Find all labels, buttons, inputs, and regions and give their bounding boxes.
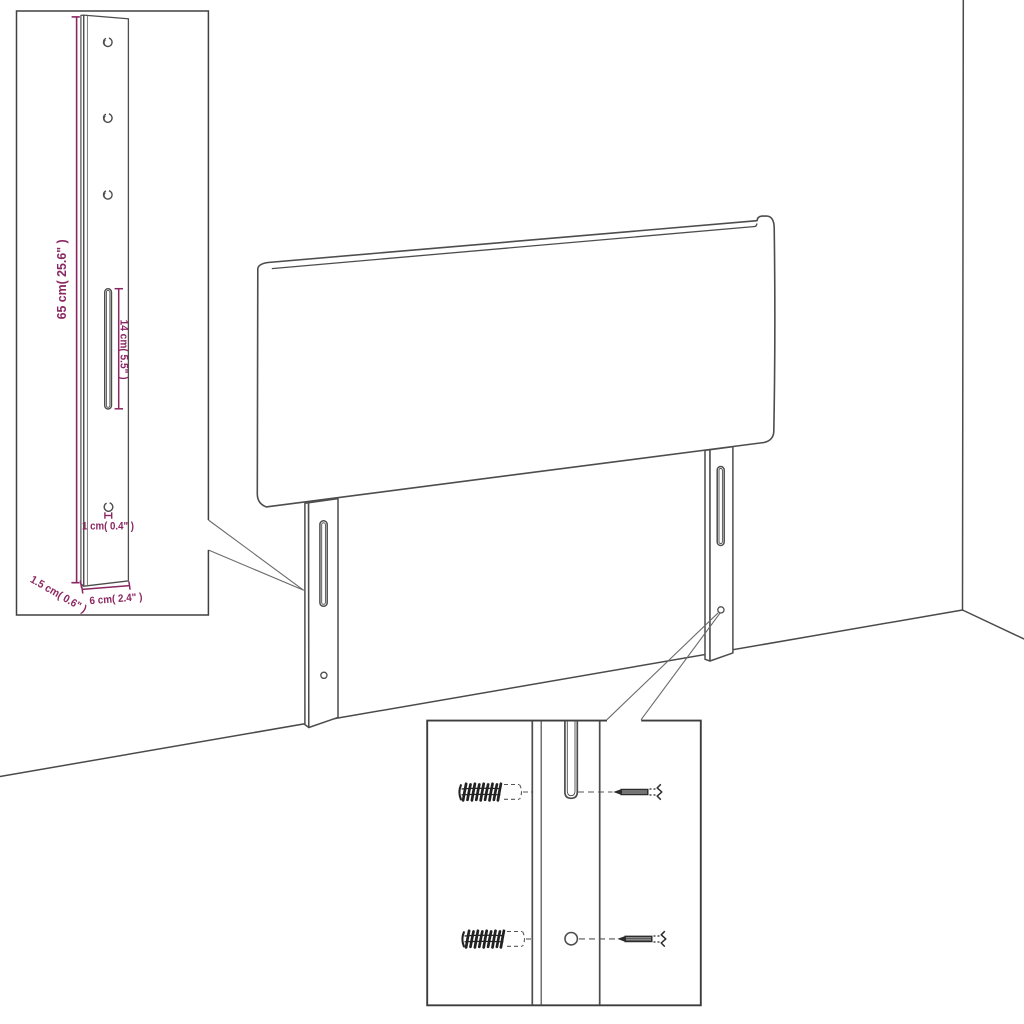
svg-text:14 cm( 5.5" ): 14 cm( 5.5" )	[117, 320, 129, 380]
svg-text:65 cm( 25.6" ): 65 cm( 25.6" )	[55, 239, 69, 319]
svg-text:1 cm( 0.4" ): 1 cm( 0.4" )	[82, 521, 134, 533]
